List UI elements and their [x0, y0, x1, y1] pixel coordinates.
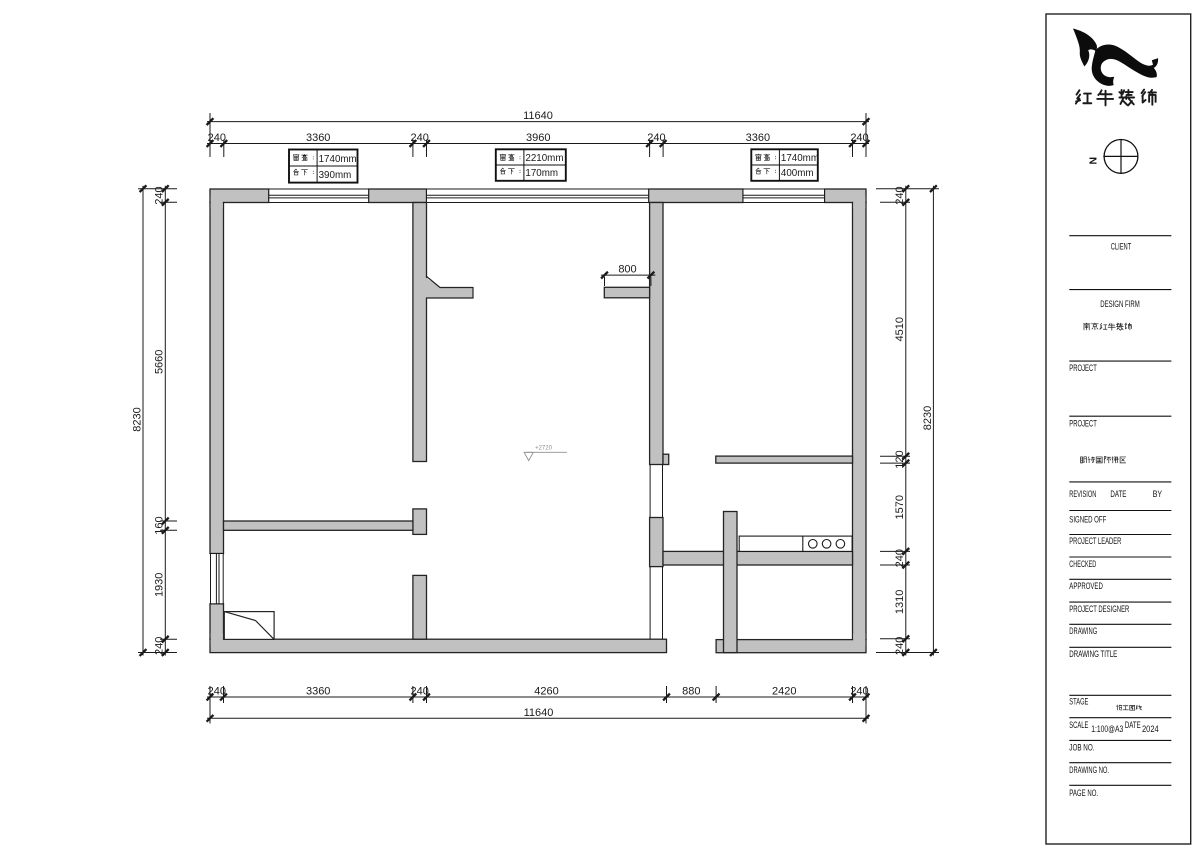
- svg-text:400mm: 400mm: [781, 168, 814, 179]
- svg-text:DRAWING TITLE: DRAWING TITLE: [1069, 649, 1117, 659]
- svg-text:DRAWING NO.: DRAWING NO.: [1069, 765, 1109, 775]
- svg-text:3360: 3360: [746, 132, 770, 144]
- svg-text:JOB NO.: JOB NO.: [1069, 743, 1094, 753]
- svg-text:BY: BY: [1153, 489, 1163, 499]
- svg-text:PAGE NO.: PAGE NO.: [1069, 788, 1098, 798]
- svg-text:11640: 11640: [523, 110, 553, 122]
- svg-text:SCALE: SCALE: [1069, 720, 1088, 730]
- svg-text:2024: 2024: [1142, 724, 1159, 734]
- svg-text:8230: 8230: [132, 407, 144, 431]
- svg-text:DESIGN FIRM: DESIGN FIRM: [1100, 299, 1140, 309]
- svg-text:4260: 4260: [534, 686, 558, 698]
- svg-text:2420: 2420: [772, 686, 796, 698]
- svg-text:DRAWING: DRAWING: [1069, 626, 1097, 636]
- svg-text:170mm: 170mm: [525, 168, 558, 179]
- svg-text:3360: 3360: [306, 132, 330, 144]
- svg-text:8230: 8230: [922, 406, 934, 430]
- svg-text:1570: 1570: [894, 495, 906, 519]
- svg-text:1740mm: 1740mm: [319, 154, 357, 165]
- svg-text:PROJECT: PROJECT: [1069, 363, 1097, 373]
- svg-text:3960: 3960: [526, 132, 550, 144]
- svg-text:390mm: 390mm: [319, 170, 352, 181]
- svg-text:+2720: +2720: [535, 445, 553, 451]
- svg-text:11640: 11640: [524, 707, 554, 719]
- svg-text:APPROVED: APPROVED: [1069, 581, 1103, 591]
- svg-text:1:100@A3: 1:100@A3: [1091, 724, 1123, 734]
- svg-text:PROJECT LEADER: PROJECT LEADER: [1069, 536, 1121, 546]
- svg-text:DATE: DATE: [1110, 489, 1126, 499]
- svg-text:N: N: [1088, 157, 1100, 165]
- svg-text:800: 800: [618, 263, 636, 275]
- svg-text:DATE: DATE: [1125, 720, 1141, 730]
- svg-text:2210mm: 2210mm: [525, 153, 563, 164]
- svg-text:CHECKED: CHECKED: [1069, 559, 1096, 569]
- svg-text:880: 880: [682, 686, 700, 698]
- svg-text:1310: 1310: [894, 590, 906, 614]
- svg-text:3360: 3360: [306, 686, 330, 698]
- svg-text:CLIENT: CLIENT: [1111, 242, 1132, 252]
- svg-text:160: 160: [154, 516, 166, 534]
- svg-text:1930: 1930: [154, 573, 166, 597]
- svg-text:PROJECT: PROJECT: [1069, 419, 1097, 429]
- svg-text:SIGNED OFF: SIGNED OFF: [1069, 514, 1106, 524]
- svg-text:1740mm: 1740mm: [781, 153, 819, 164]
- svg-text:STAGE: STAGE: [1069, 697, 1088, 707]
- svg-text:4510: 4510: [894, 317, 906, 341]
- svg-text:120: 120: [894, 450, 906, 468]
- svg-text:PROJECT DESIGNER: PROJECT DESIGNER: [1069, 604, 1129, 614]
- svg-text:5660: 5660: [154, 350, 166, 374]
- svg-text:REVISION: REVISION: [1069, 489, 1096, 499]
